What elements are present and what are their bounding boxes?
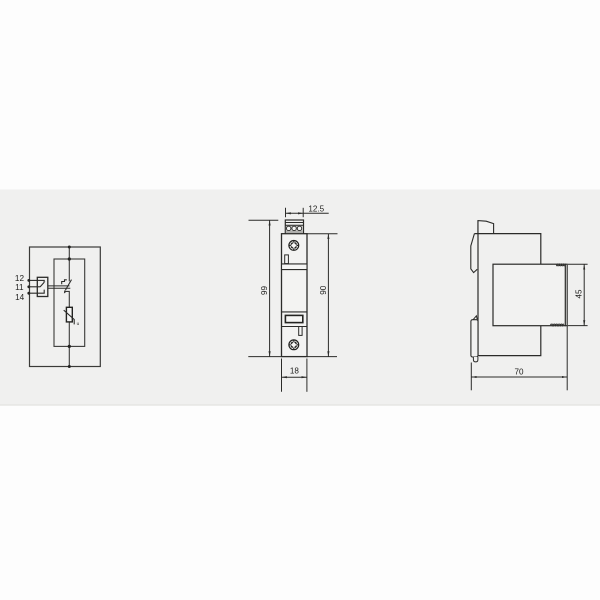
svg-text:12: 12 <box>15 274 25 283</box>
svg-text:45: 45 <box>574 289 583 299</box>
svg-text:99: 99 <box>260 286 269 296</box>
svg-text:11: 11 <box>15 283 24 292</box>
svg-text:u: u <box>77 321 80 326</box>
svg-text:18: 18 <box>290 367 300 376</box>
svg-text:90: 90 <box>319 285 328 295</box>
svg-text:70: 70 <box>514 367 524 376</box>
svg-text:12.5: 12.5 <box>308 204 324 213</box>
svg-text:14: 14 <box>15 293 25 302</box>
